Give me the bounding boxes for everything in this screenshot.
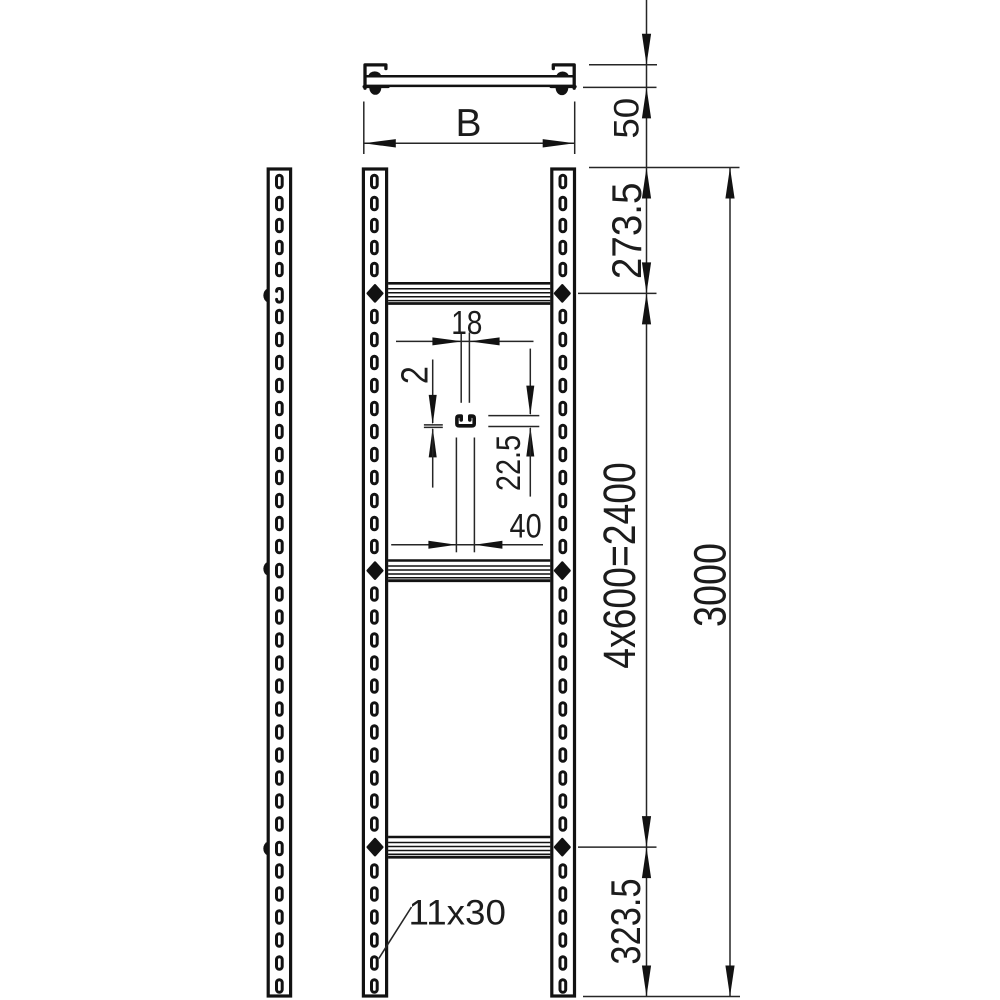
- svg-text:3000: 3000: [684, 543, 735, 627]
- svg-text:40: 40: [510, 506, 542, 545]
- svg-text:273.5: 273.5: [602, 182, 650, 279]
- svg-text:323.5: 323.5: [603, 878, 650, 964]
- svg-text:22.5: 22.5: [489, 435, 528, 491]
- svg-text:50: 50: [607, 98, 646, 139]
- svg-text:B: B: [455, 102, 481, 145]
- svg-text:2: 2: [394, 366, 436, 384]
- svg-text:11x30: 11x30: [409, 893, 506, 932]
- svg-text:18: 18: [451, 305, 482, 342]
- svg-text:4x600=2400: 4x600=2400: [595, 462, 645, 669]
